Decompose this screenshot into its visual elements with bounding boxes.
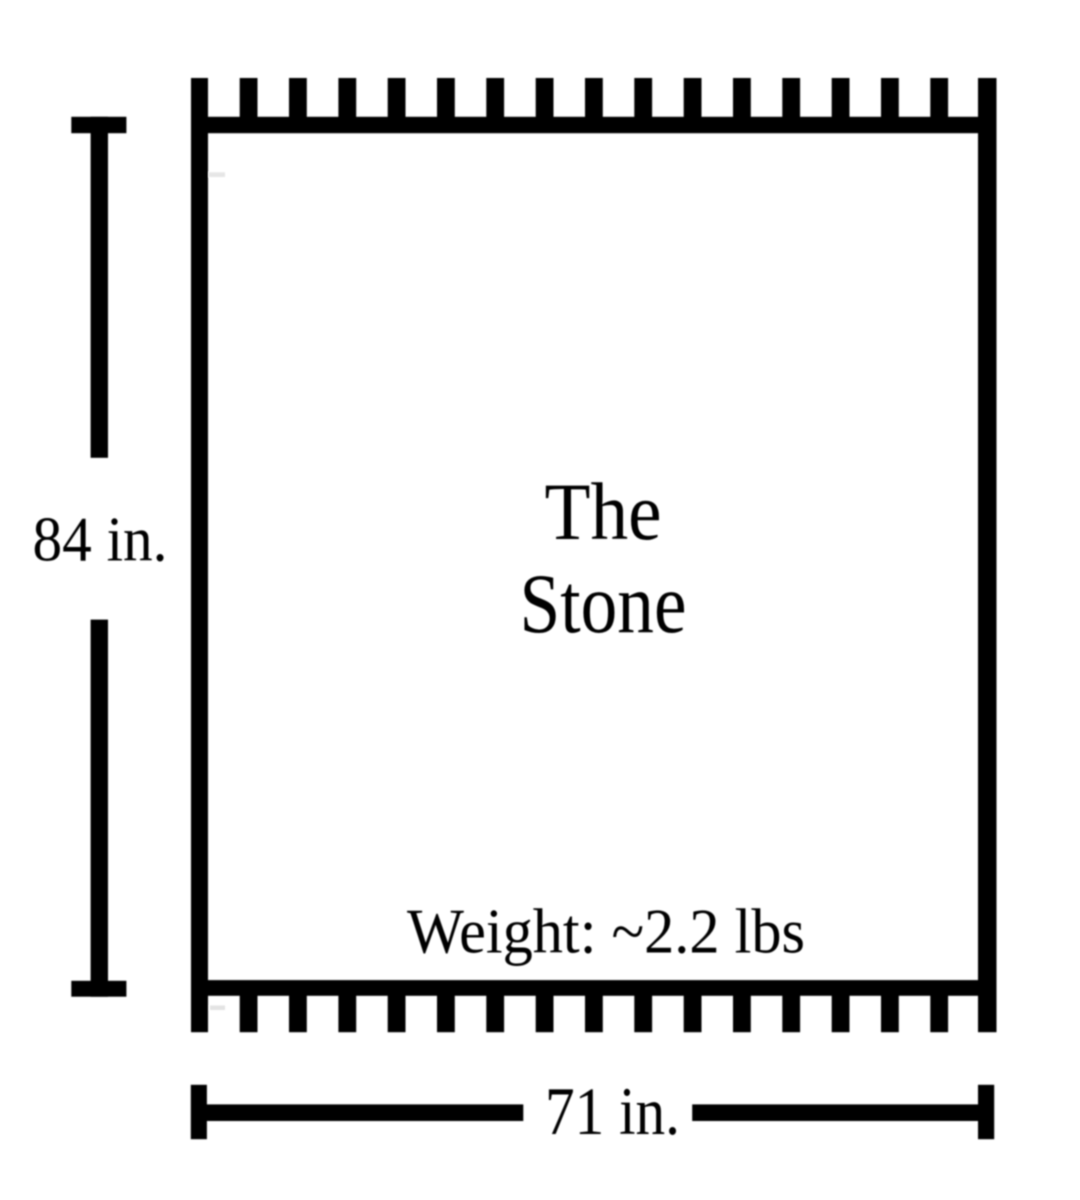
svg-text:Weight: ~2.2 lbs: Weight: ~2.2 lbs (407, 895, 805, 966)
svg-text:71 in.: 71 in. (545, 1073, 680, 1149)
svg-text:84 in.: 84 in. (33, 504, 168, 575)
svg-text:Stone: Stone (520, 557, 687, 651)
svg-text:The: The (545, 466, 662, 557)
